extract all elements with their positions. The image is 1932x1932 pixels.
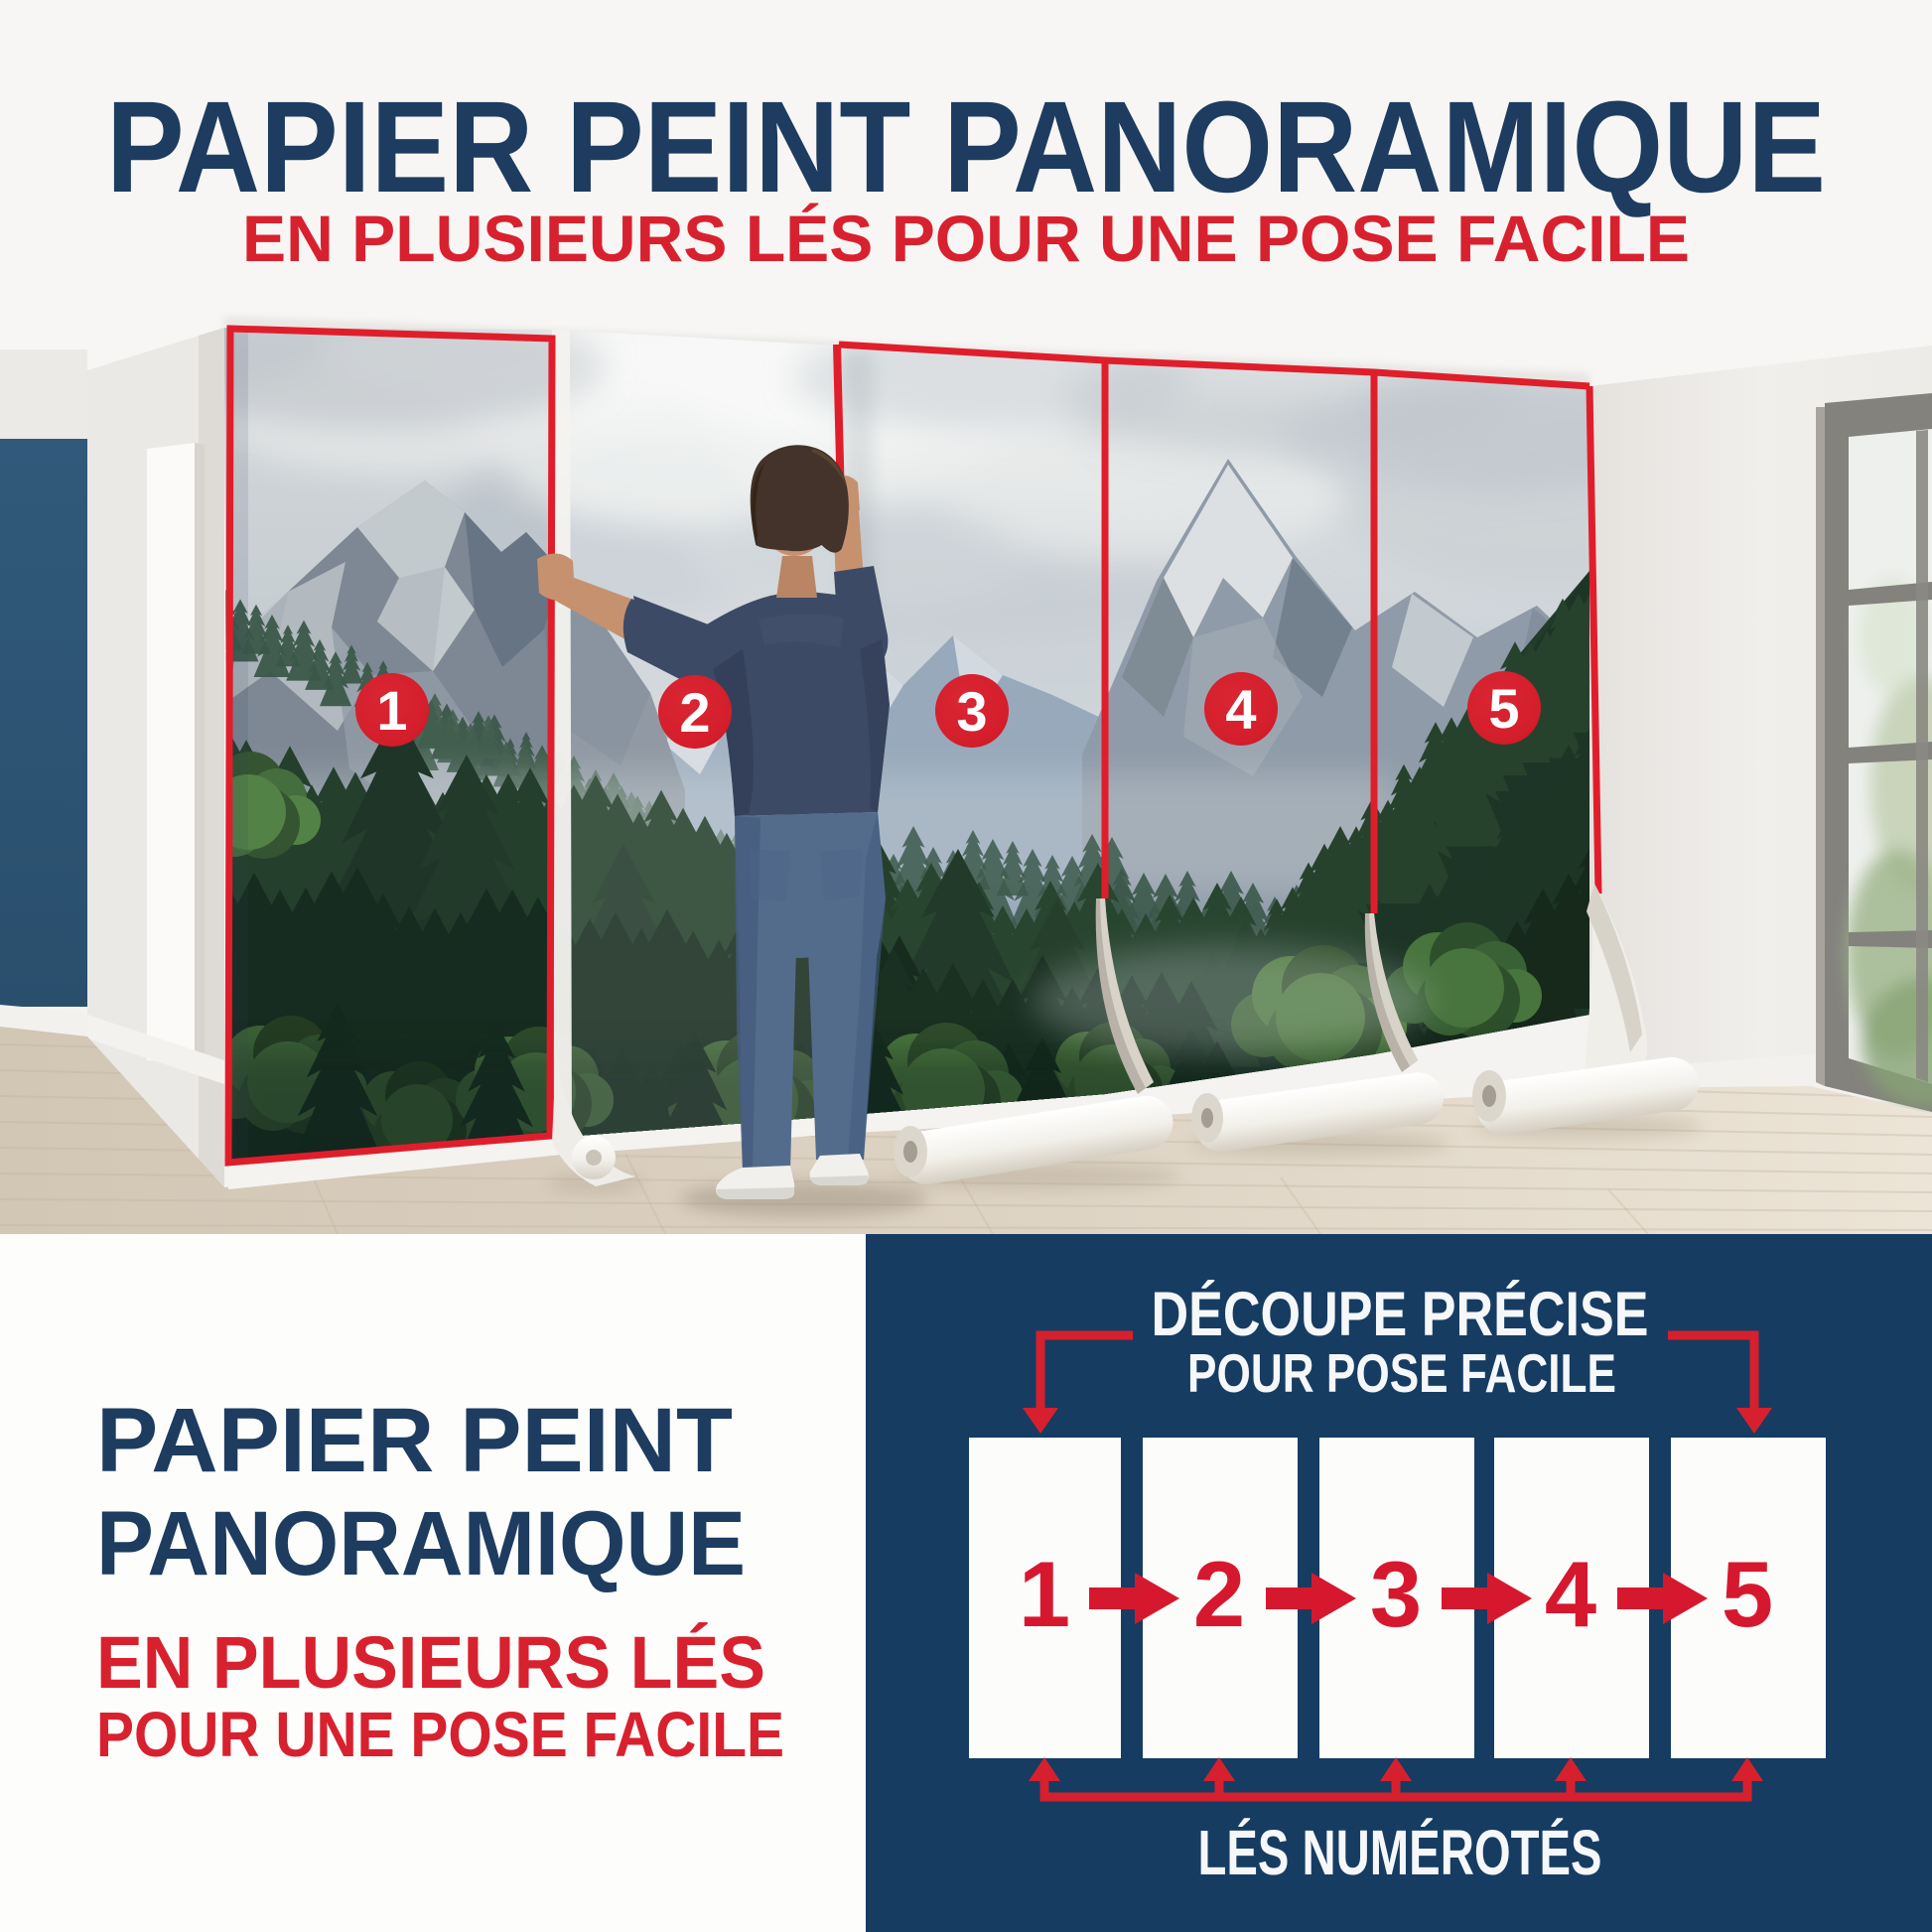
svg-text:3: 3 bbox=[1370, 1542, 1422, 1646]
svg-text:PAPIER PEINT: PAPIER PEINT bbox=[96, 1390, 733, 1491]
svg-text:PANORAMIQUE: PANORAMIQUE bbox=[96, 1493, 746, 1594]
svg-text:EN PLUSIEURS LÉS: EN PLUSIEURS LÉS bbox=[96, 1621, 765, 1704]
svg-text:LÉS NUMÉROTÉS: LÉS NUMÉROTÉS bbox=[1198, 1817, 1602, 1888]
svg-text:POUR UNE POSE FACILE: POUR UNE POSE FACILE bbox=[96, 1699, 784, 1770]
svg-text:2: 2 bbox=[679, 681, 710, 744]
svg-text:DÉCOUPE PRÉCISE: DÉCOUPE PRÉCISE bbox=[1152, 1280, 1649, 1349]
svg-text:4: 4 bbox=[1545, 1542, 1596, 1646]
svg-text:2: 2 bbox=[1193, 1542, 1245, 1646]
svg-text:EN PLUSIEURS LÉS POUR UNE POSE: EN PLUSIEURS LÉS POUR UNE POSE FACILE bbox=[242, 202, 1690, 275]
svg-text:5: 5 bbox=[1488, 677, 1519, 740]
svg-text:PAPIER PEINT PANORAMIQUE: PAPIER PEINT PANORAMIQUE bbox=[106, 73, 1826, 219]
svg-text:1: 1 bbox=[1019, 1542, 1070, 1646]
svg-text:4: 4 bbox=[1225, 678, 1256, 741]
svg-text:POUR POSE FACILE: POUR POSE FACILE bbox=[1187, 1342, 1616, 1404]
svg-text:5: 5 bbox=[1722, 1542, 1773, 1646]
svg-text:1: 1 bbox=[376, 679, 407, 742]
svg-text:3: 3 bbox=[956, 680, 987, 743]
